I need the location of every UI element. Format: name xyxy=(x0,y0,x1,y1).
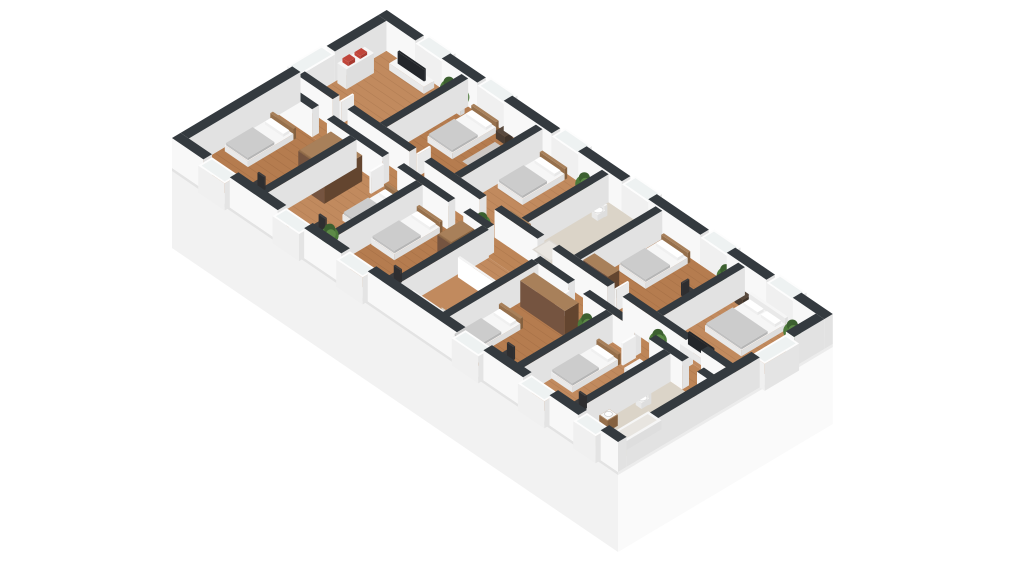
bed-headboard xyxy=(520,317,523,330)
bed-headboard xyxy=(293,127,296,140)
bed-headboard xyxy=(440,221,443,234)
bed-headboard xyxy=(688,251,691,264)
desk-chair-back xyxy=(585,395,587,409)
door-leaf xyxy=(621,343,623,366)
desk-chair-back xyxy=(514,346,516,360)
exterior-wall xyxy=(618,437,627,472)
isometric-floorplan-svg xyxy=(0,0,1024,576)
desk-chair-back xyxy=(400,269,402,283)
bed-headboard xyxy=(618,353,621,366)
floor-plan-3d-render xyxy=(0,0,1024,576)
tv-screen xyxy=(424,68,426,81)
interior-wall xyxy=(682,357,689,389)
exterior-wall xyxy=(824,314,833,349)
desk-chair-back xyxy=(681,282,682,296)
sink-basin xyxy=(604,411,612,416)
door-leaf xyxy=(369,171,371,194)
bed-headboard xyxy=(565,167,568,180)
desk-chair-back xyxy=(264,176,266,190)
interior-wall xyxy=(312,105,319,137)
